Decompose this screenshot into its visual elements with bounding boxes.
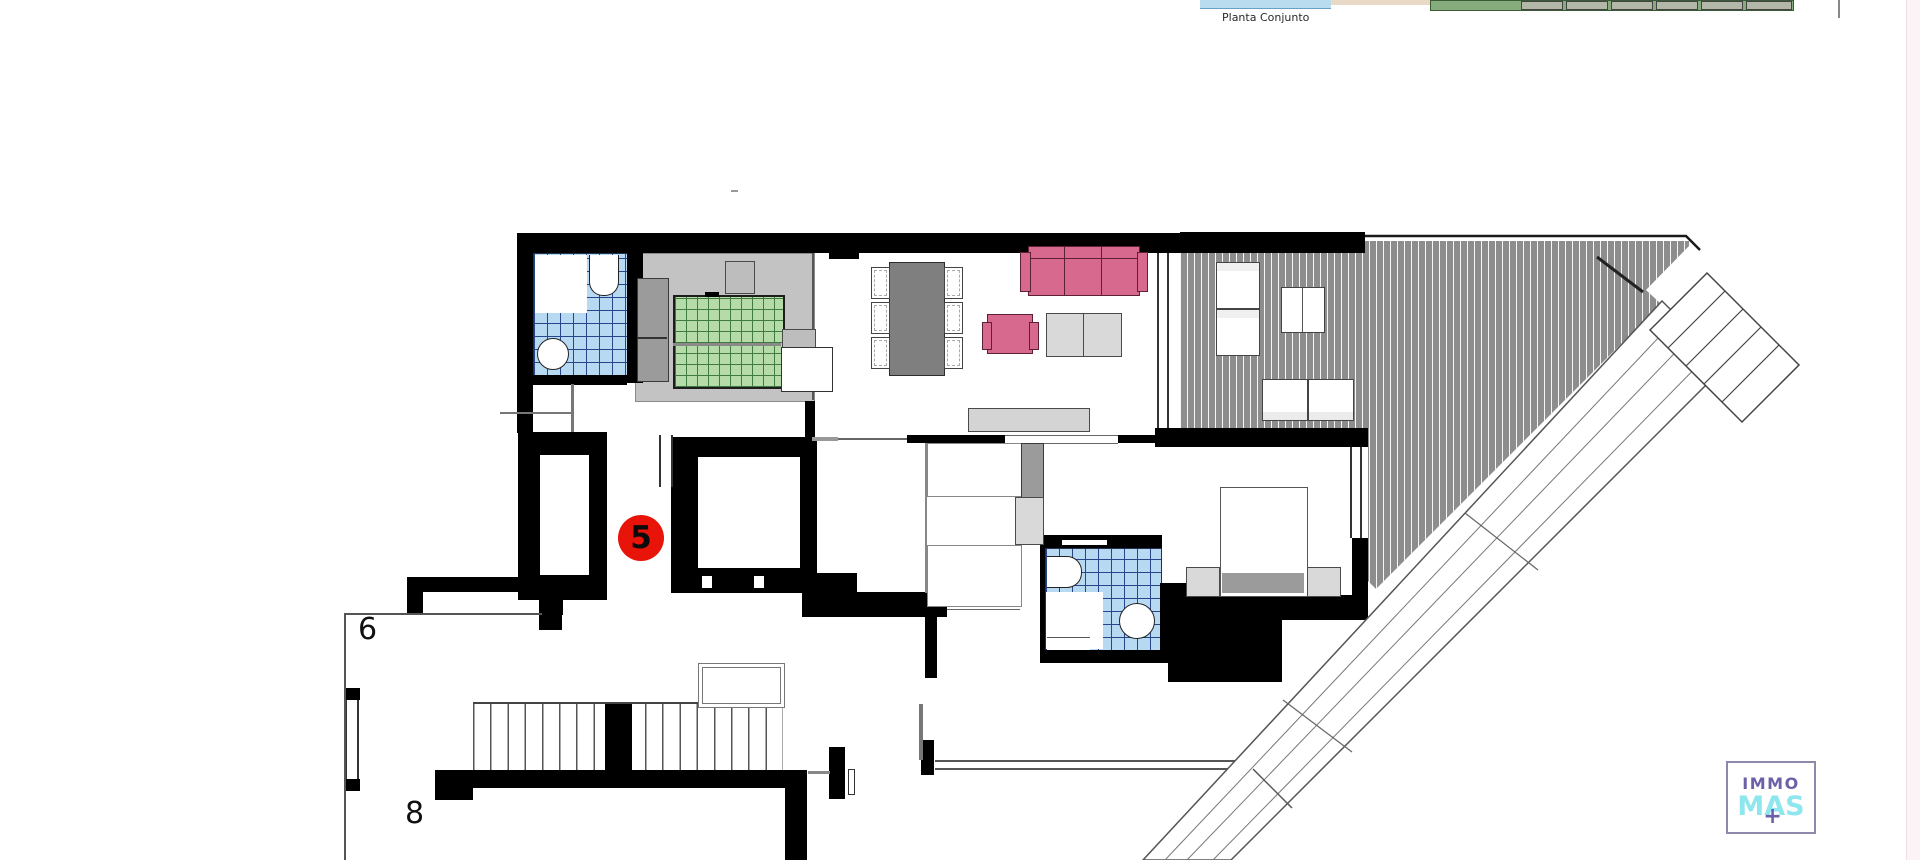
deck-chair [1262, 379, 1308, 421]
toilet1-icon [589, 255, 619, 296]
site-divider-line [1838, 0, 1840, 18]
deck-table [1281, 287, 1325, 333]
lower-terrace-line-b [935, 768, 1255, 770]
elevator-interior [698, 457, 800, 568]
bedroom2-partition [925, 443, 927, 593]
deck-chair [1308, 379, 1354, 421]
bed-green [673, 295, 785, 389]
wall-living-bottom [1155, 428, 1368, 447]
wall-bathroom1-bottom [533, 375, 627, 385]
wall-shaft-connect [518, 460, 538, 577]
wall-entry-L-right [540, 592, 563, 615]
diagonal-structures [0, 0, 1920, 860]
dining-chair [871, 302, 890, 334]
elevator-door-mark [754, 576, 764, 588]
shaft-interior [540, 455, 589, 575]
label-terrace-6: 6 [358, 612, 377, 647]
site-roof-block [1521, 1, 1563, 10]
dining-table [889, 262, 945, 376]
window-tick-top [344, 688, 360, 700]
window-left-terrace [345, 700, 359, 779]
stairs-divider [605, 704, 632, 770]
wall-entry-L-top [407, 577, 563, 592]
site-roof-block [1566, 1, 1608, 10]
wardrobe1-split [637, 337, 667, 339]
door-jamb-hall [659, 435, 673, 487]
bathroom2-door-slot [1062, 540, 1107, 545]
hall-door-leaf [571, 384, 574, 432]
hall-door-line [500, 412, 572, 414]
bed-green-pillow-mark [705, 292, 719, 297]
dining-chair [871, 337, 890, 369]
wall-left [517, 253, 533, 433]
stub-link-line [808, 771, 830, 774]
dining-chair [871, 267, 890, 299]
lower-terrace-line-a [935, 760, 1255, 762]
terrace6-boundary-left [344, 613, 346, 860]
dining-chair [944, 302, 963, 334]
washbasin2-icon [1119, 603, 1155, 639]
site-water-shape [1200, 0, 1331, 9]
site-roof-block [1656, 1, 1698, 10]
wall-mid-bottom-L [802, 573, 857, 617]
door-slot-stub [848, 769, 855, 795]
door-leaf-lower [919, 704, 923, 760]
wall-hall-stub [805, 401, 815, 439]
window-bedroom3-right [1350, 447, 1362, 538]
wall-stairs-step [435, 788, 473, 800]
sofa-arm-left [1020, 252, 1031, 292]
sun-lounger [1216, 262, 1260, 309]
sun-lounger [1216, 309, 1260, 356]
wall-door-post [925, 613, 937, 678]
nightstand1 [725, 261, 755, 294]
logo-text-mas: MAS + [1737, 793, 1804, 820]
wardrobe2 [1021, 443, 1044, 499]
logo-text-immo: IMMO [1742, 776, 1799, 792]
nightstand3-left [1186, 567, 1220, 597]
toilet2-icon [1047, 556, 1082, 588]
glass-wall-living-terrace [1157, 253, 1169, 428]
site-roof-block [1701, 1, 1743, 10]
sofa [1028, 246, 1140, 296]
nightstand2 [1015, 497, 1044, 545]
window-tick-bottom [344, 779, 360, 791]
wall-stub-a [829, 747, 845, 799]
wall-entry-L-left [407, 592, 423, 615]
armchair-arm-right [1029, 322, 1039, 350]
tiny-mark [731, 190, 738, 192]
desk1 [781, 347, 833, 392]
logo-plus-icon: + [1763, 806, 1781, 828]
page-right-edge [1906, 0, 1920, 860]
wall-notch [829, 253, 859, 259]
wall-top-deck [1180, 232, 1365, 253]
wall-bathroom2-bottom [1043, 650, 1165, 663]
unit-number-badge: 5 [618, 515, 664, 561]
wall-stairs-bottom [435, 770, 807, 788]
wall-bathroom2-left [1040, 535, 1045, 663]
thumbnail-caption: Planta Conjunto [1222, 11, 1309, 24]
armchair-arm-left [982, 322, 992, 350]
site-roof-block [1611, 1, 1653, 10]
site-sand-shape [1331, 0, 1430, 5]
stairs-landing [698, 663, 785, 708]
immomas-logo: IMMO MAS + [1726, 761, 1816, 834]
shower1 [535, 255, 587, 313]
dining-chair [944, 337, 963, 369]
wardrobe1 [637, 278, 669, 382]
wall-right-lower [785, 770, 807, 860]
sideboard [968, 408, 1090, 432]
coffee-table [1046, 313, 1122, 357]
elevator-door-mark [702, 576, 712, 588]
sofa-arm-right [1137, 252, 1148, 292]
bathroom2-door-gap [1047, 637, 1090, 650]
dining-chair [944, 267, 963, 299]
bed-single-a [927, 443, 1022, 497]
label-terrace-8: 8 [405, 796, 424, 831]
floorplan-canvas: Planta Conjunto [0, 0, 1920, 860]
armchair [987, 314, 1033, 354]
sliding-door-track [812, 437, 838, 441]
bed-double-foot [1222, 573, 1304, 593]
site-roof-block [1746, 1, 1792, 10]
sliding-door-leaf [838, 438, 907, 440]
nightstand3-right [1307, 567, 1341, 597]
washbasin1-icon [537, 338, 569, 370]
bed-green-foldline [673, 343, 781, 346]
bed-single-b [927, 545, 1022, 607]
